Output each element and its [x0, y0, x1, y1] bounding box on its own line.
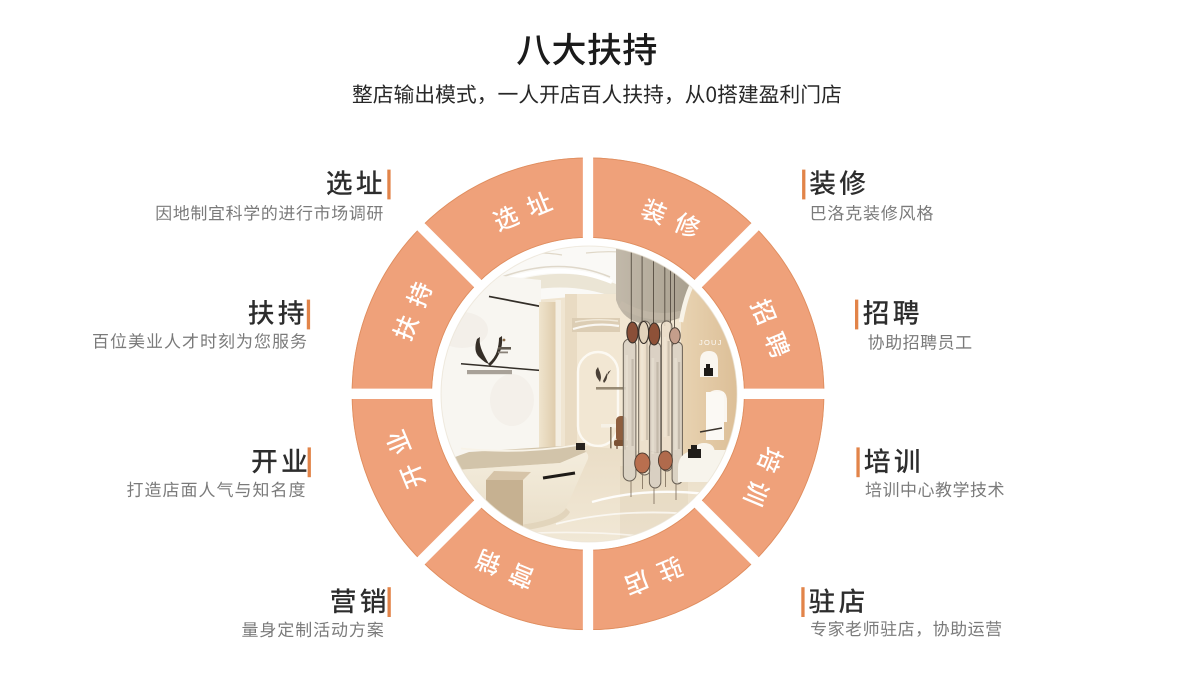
svg-text:JOUJ: JOUJ	[699, 338, 723, 347]
